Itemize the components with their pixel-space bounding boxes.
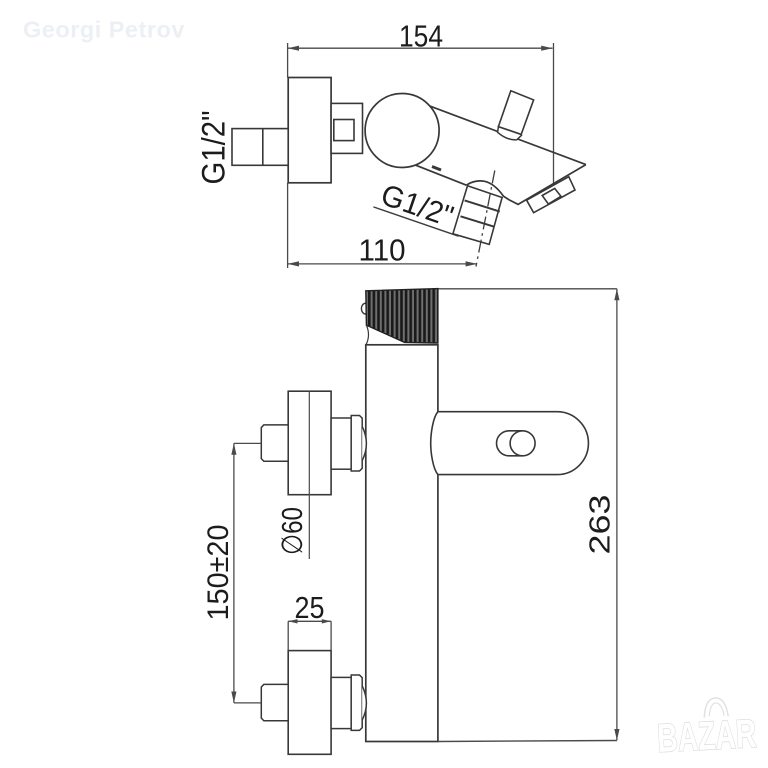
svg-text:G1/2": G1/2" bbox=[377, 178, 458, 233]
svg-text:110: 110 bbox=[359, 233, 406, 268]
svg-text:154: 154 bbox=[399, 19, 443, 54]
svg-text:25: 25 bbox=[295, 590, 325, 625]
svg-text:Georgi Petrov: Georgi Petrov bbox=[23, 17, 185, 43]
svg-text:150±20: 150±20 bbox=[202, 525, 235, 621]
svg-text:G1/2": G1/2" bbox=[196, 111, 232, 185]
svg-text:BAZAR: BAZAR bbox=[656, 712, 757, 761]
svg-text:∅60: ∅60 bbox=[277, 507, 309, 555]
svg-text:263: 263 bbox=[585, 495, 617, 555]
